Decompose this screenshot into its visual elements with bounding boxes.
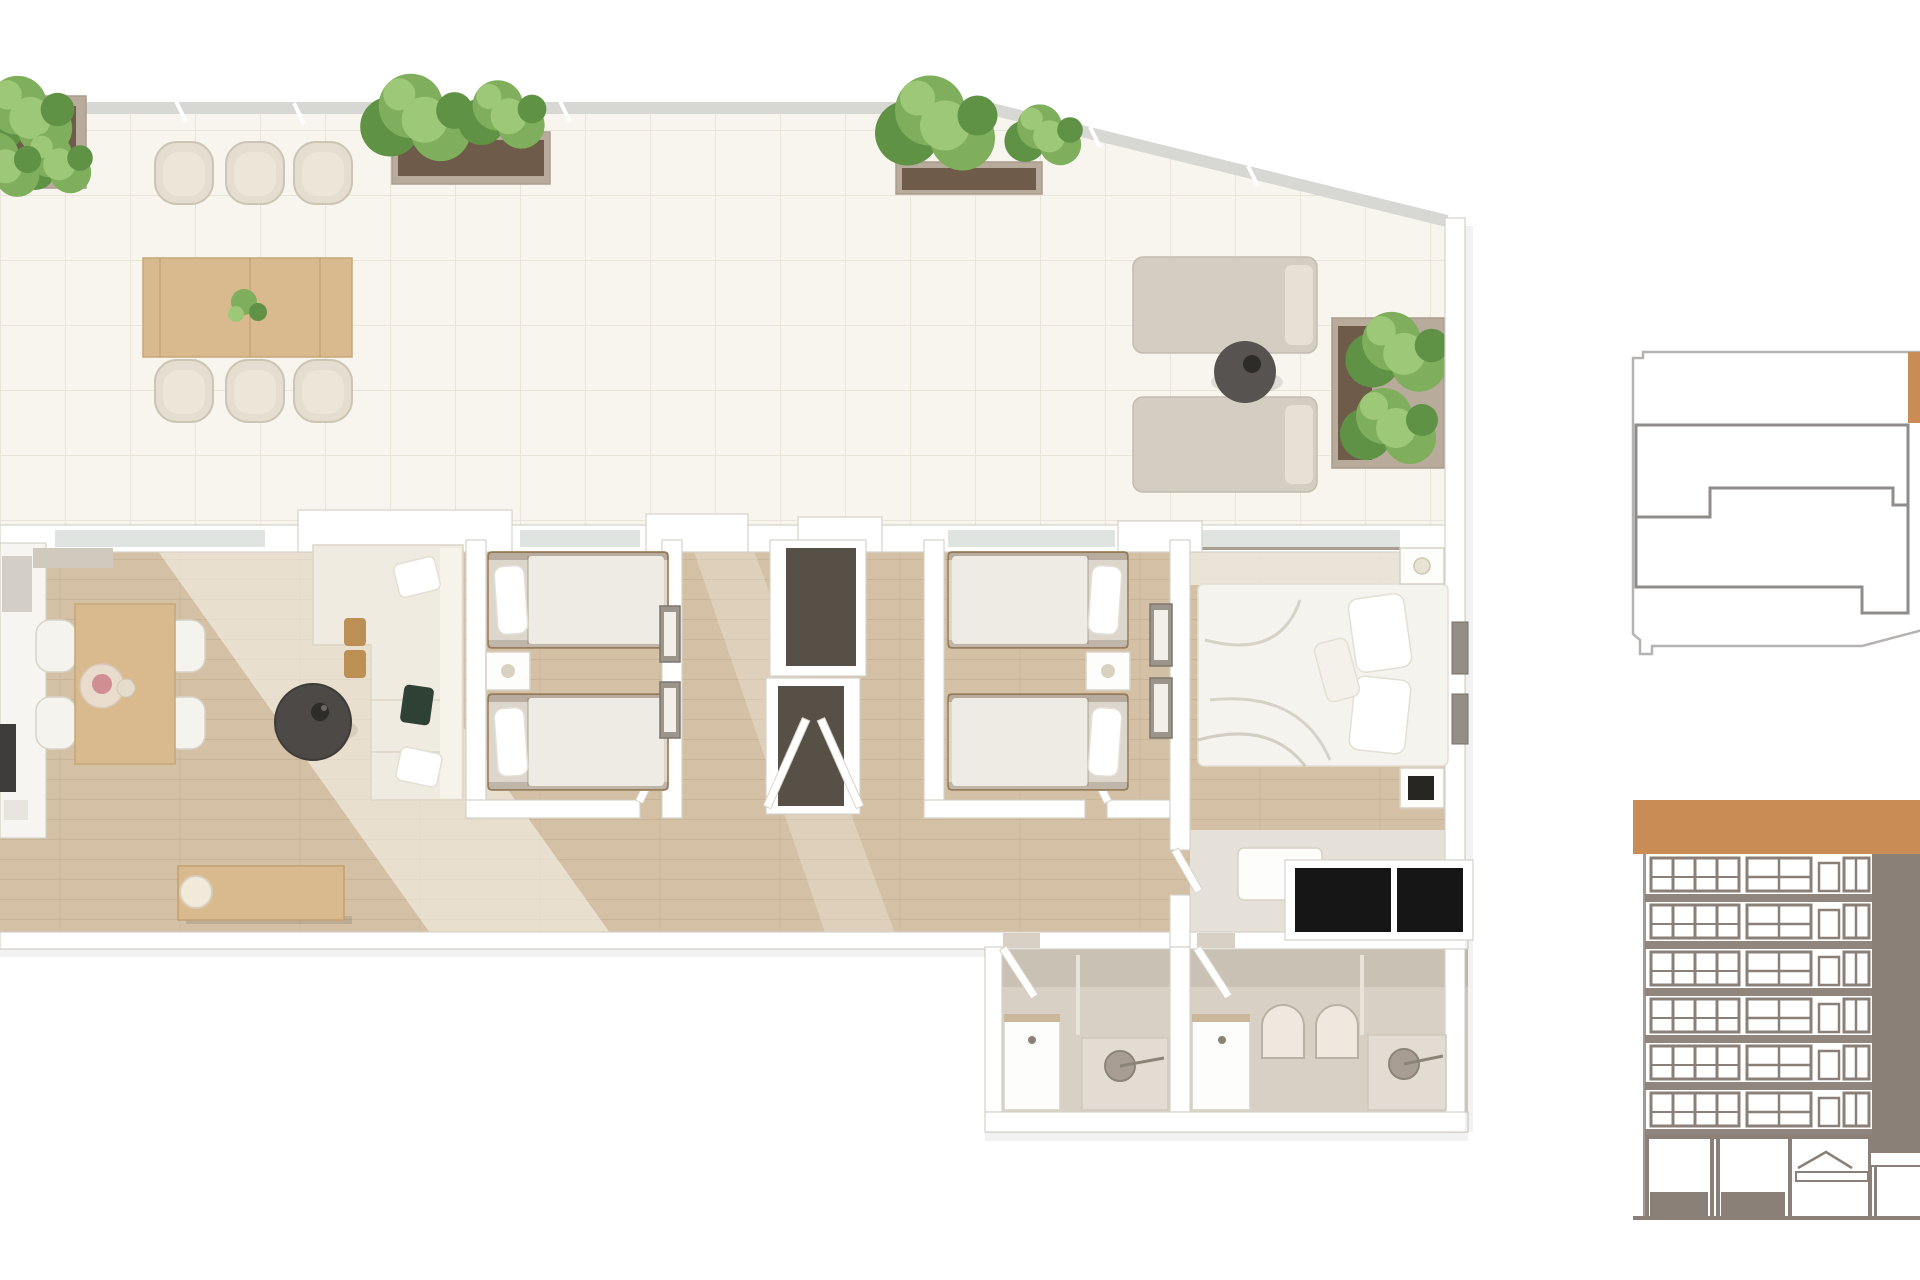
floor-plan-canvas <box>0 0 1920 1280</box>
dining-chair <box>36 697 76 749</box>
bathroom-bottom-wall <box>985 1112 1468 1132</box>
elevation-floor-row <box>1645 858 1872 902</box>
planter-terrace-right <box>1332 312 1448 468</box>
outdoor-chair <box>155 142 213 204</box>
bedroom2-right-wall <box>1170 540 1190 850</box>
outdoor-chair <box>294 360 352 422</box>
bidet-icon <box>1316 1005 1358 1058</box>
dining-chair <box>36 620 76 672</box>
master-window <box>1200 530 1400 547</box>
outdoor-chair <box>226 142 284 204</box>
wall-art <box>1452 622 1468 674</box>
outdoor-chair <box>226 360 284 422</box>
twin-bed <box>948 694 1128 790</box>
bedroom2-window <box>948 530 1115 547</box>
sliding-glass-door <box>55 530 265 547</box>
toilet-icon <box>1262 1005 1304 1058</box>
twin-bed <box>488 552 668 648</box>
side-awning <box>1870 1152 1920 1166</box>
elevation-floor-row <box>1645 1093 1872 1137</box>
floor-plan-render-page <box>0 0 1920 1280</box>
sideboard <box>178 866 352 924</box>
faucet-icon <box>1218 1036 1226 1044</box>
bedroom1-window <box>520 530 640 547</box>
table-lamp <box>180 876 212 908</box>
sofa-cushion-tan <box>344 618 366 646</box>
key-plan-site-outline <box>1633 352 1920 654</box>
outdoor-chair <box>294 142 352 204</box>
planter-corner-left <box>0 76 93 197</box>
bedroom2-left-wall <box>924 540 944 818</box>
elevation-floor-row <box>1645 1046 1872 1090</box>
wardrobe-black-panel <box>1397 868 1463 932</box>
vanity <box>1004 1014 1060 1110</box>
pillow <box>1347 592 1413 673</box>
elevation-core-column <box>1872 854 1920 1152</box>
twin-bed <box>948 552 1128 648</box>
master-bedroom <box>1198 548 1473 940</box>
bottom-wall <box>0 932 1468 949</box>
oven-icon <box>0 724 16 792</box>
key-plan <box>1633 352 1920 654</box>
wardrobe-dark-panel <box>786 548 856 666</box>
vanity <box>1192 1014 1250 1110</box>
sofa-cushion-green <box>400 684 435 726</box>
black-wardrobe <box>1285 860 1473 940</box>
terrace <box>0 74 1448 542</box>
bedroom1-left-wall <box>466 540 486 818</box>
round-coffee-table <box>275 684 351 760</box>
elevation-floor-row <box>1645 905 1872 949</box>
outdoor-dining-set <box>143 142 352 422</box>
faucet-icon <box>1028 1036 1036 1044</box>
outdoor-chair <box>155 360 213 422</box>
entrance-canopy <box>1798 1152 1852 1168</box>
ground-opening <box>1650 1192 1708 1218</box>
building-elevation <box>1633 800 1920 1220</box>
elevation-floor-row <box>1645 952 1872 996</box>
round-side-table <box>1214 341 1276 403</box>
ground-opening <box>1721 1192 1785 1218</box>
elevation-floor-row <box>1645 999 1872 1043</box>
key-plan-unit-highlight <box>1908 352 1920 423</box>
wall-art <box>1452 694 1468 744</box>
bathroom-divider-wall <box>1170 947 1190 1112</box>
ground-line <box>1633 1216 1920 1220</box>
wardrobe-black-panel <box>1295 868 1391 932</box>
twin-bed <box>488 694 668 790</box>
elevation-roof-band <box>1633 800 1920 854</box>
bedside-lamp <box>1414 558 1430 574</box>
